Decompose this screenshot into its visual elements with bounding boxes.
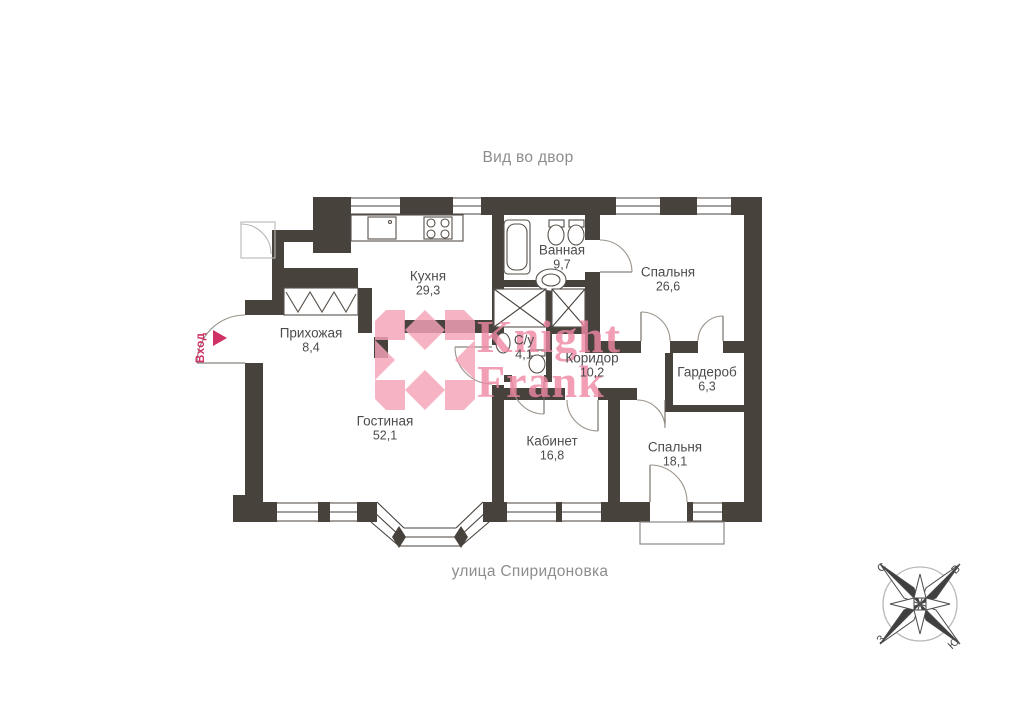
entrance-arrow-icon — [213, 330, 227, 346]
hallway-closet — [284, 288, 358, 315]
room-label-bedroom-1: Спальня 26,6 — [641, 265, 695, 294]
compass-rose: С В З Ю — [874, 561, 962, 652]
room-label-corridor: Коридор 10,2 — [565, 351, 618, 380]
room-label-living-room: Гостиная 52,1 — [357, 414, 414, 443]
kitchen-fixtures — [351, 215, 463, 241]
room-label-bathroom: Ванная 9,7 — [539, 243, 585, 272]
room-label-office: Кабинет 16,8 — [526, 434, 577, 463]
room-label-wardrobe: Гардероб 6,3 — [677, 365, 736, 394]
compass-south-label: Ю — [946, 636, 962, 652]
room-label-bedroom-2: Спальня 18,1 — [648, 440, 702, 469]
room-label-kitchen: Кухня 29,3 — [410, 269, 446, 298]
entrance-label: Вход — [195, 333, 207, 363]
balcony — [640, 522, 724, 544]
room-label-hallway: Прихожая 8,4 — [280, 326, 343, 355]
knight-frank-logo-icon — [375, 310, 475, 410]
street-label: улица Спиридоновка — [452, 563, 609, 581]
floorplan-page: Вид во двор — [0, 0, 1024, 724]
room-label-wc: С/у 4,1 — [514, 333, 534, 362]
bay-window — [371, 502, 489, 548]
outside-stair-core — [241, 222, 275, 258]
